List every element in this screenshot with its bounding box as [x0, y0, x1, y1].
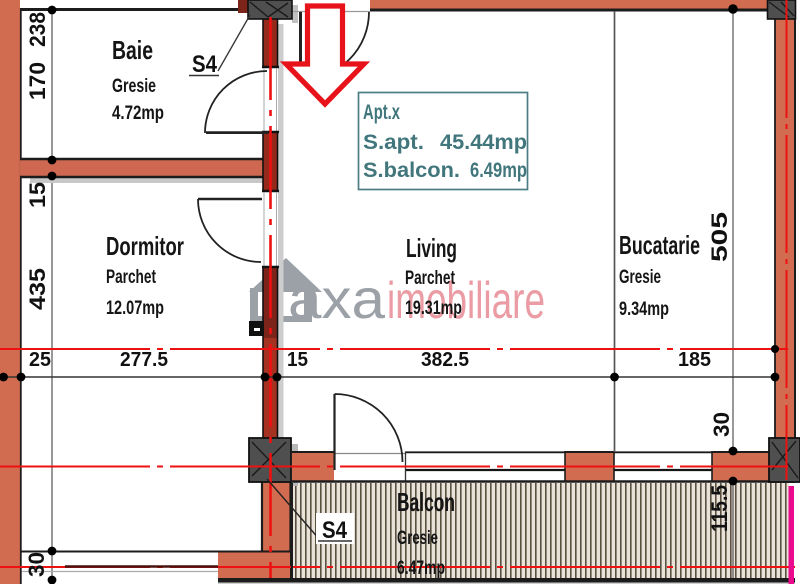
svg-text:S4: S4	[192, 51, 218, 78]
svg-text:Bucatarie: Bucatarie	[619, 230, 700, 260]
svg-text:185: 185	[678, 349, 711, 371]
svg-text:Gresie: Gresie	[397, 528, 438, 549]
svg-text:Baie: Baie	[112, 35, 153, 65]
svg-text:Parchet: Parchet	[106, 267, 156, 288]
svg-text:Living: Living	[406, 233, 457, 263]
svg-text:115.5: 115.5	[707, 485, 732, 532]
svg-text:19.31mp: 19.31mp	[405, 298, 462, 319]
svg-text:S.apt.: S.apt.	[363, 131, 424, 154]
svg-text:25: 25	[29, 349, 51, 371]
svg-text:Gresie: Gresie	[112, 76, 156, 97]
svg-text:45.44mp: 45.44mp	[440, 131, 527, 154]
svg-text:170: 170	[25, 62, 50, 100]
svg-text:Dormitor: Dormitor	[106, 231, 184, 261]
svg-text:277.5: 277.5	[120, 349, 168, 371]
svg-text:Apt.x: Apt.x	[363, 101, 400, 124]
svg-text:505: 505	[707, 212, 732, 262]
svg-text:Gresie: Gresie	[619, 267, 661, 288]
svg-text:435: 435	[25, 268, 50, 310]
svg-text:238: 238	[25, 12, 50, 47]
svg-text:6.47mp: 6.47mp	[397, 558, 445, 579]
svg-text:9.34mp: 9.34mp	[619, 299, 669, 320]
svg-text:S4: S4	[322, 517, 348, 544]
svg-text:4.72mp: 4.72mp	[112, 103, 164, 124]
svg-text:Balcon: Balcon	[397, 487, 455, 517]
svg-text:15: 15	[25, 182, 50, 208]
svg-text:382.5: 382.5	[421, 349, 469, 371]
svg-text:12.07mp: 12.07mp	[106, 298, 164, 319]
svg-text:30: 30	[709, 412, 734, 437]
svg-text:axa: axa	[288, 267, 386, 330]
svg-text:Parchet: Parchet	[405, 268, 455, 289]
svg-text:6.49mp: 6.49mp	[470, 159, 527, 182]
svg-text:S.balcon.: S.balcon.	[363, 159, 460, 182]
svg-text:30: 30	[24, 552, 49, 577]
svg-text:15: 15	[287, 349, 308, 371]
